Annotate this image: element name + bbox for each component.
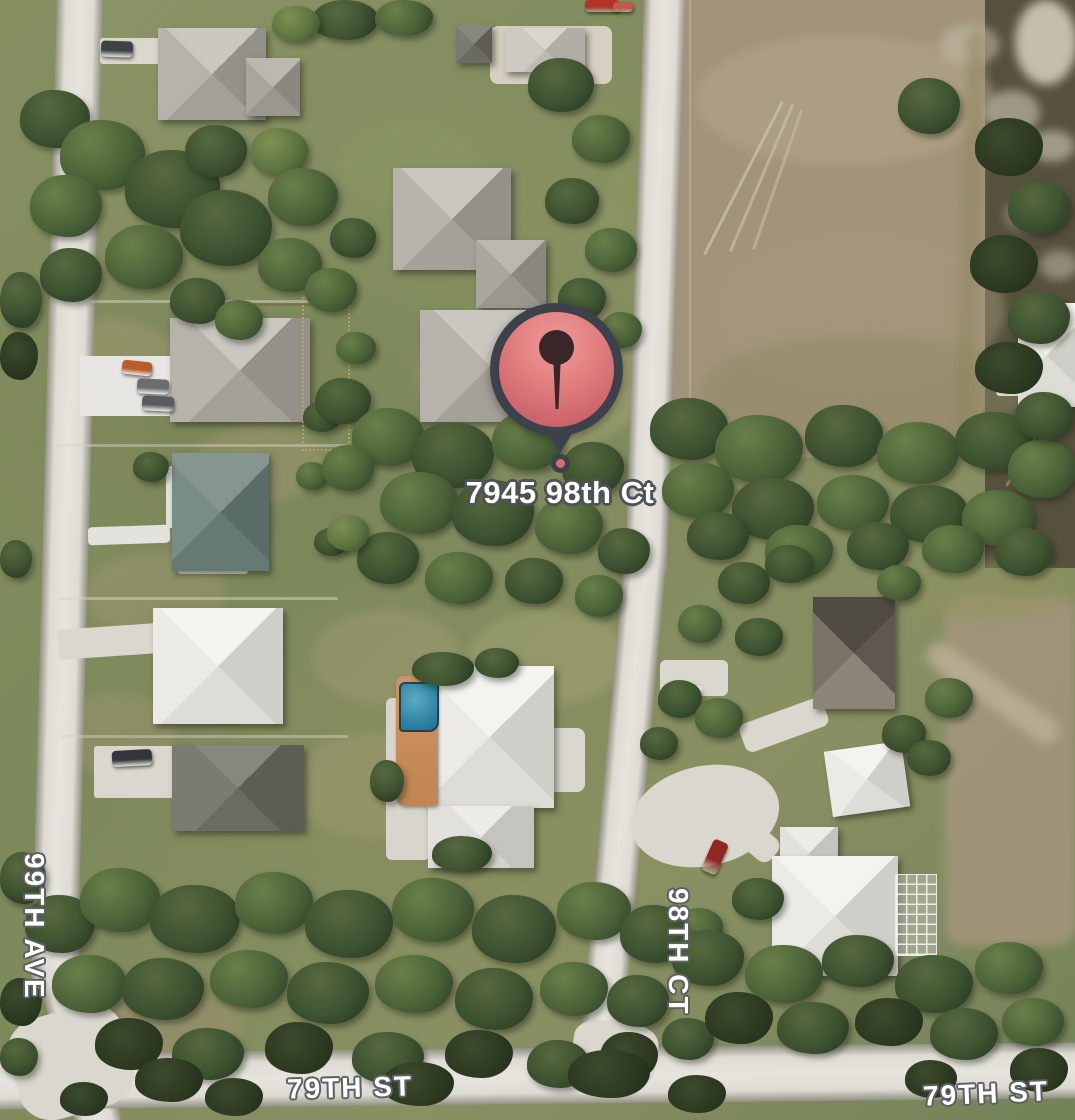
tree-canopy	[898, 78, 960, 134]
tree-canopy	[432, 836, 492, 872]
tree-canopy	[925, 678, 973, 718]
tree-canopy	[970, 235, 1038, 293]
pin-circle-icon	[490, 303, 623, 436]
tree-canopy	[975, 942, 1043, 994]
tree-canopy	[322, 445, 374, 491]
pin-glyph-stem	[551, 362, 563, 409]
tree-canopy	[735, 618, 783, 656]
tree-canopy	[995, 528, 1053, 576]
tree-canopy	[455, 968, 533, 1030]
tree-canopy	[52, 955, 126, 1013]
tree-canopy	[540, 962, 608, 1016]
tree-canopy	[180, 190, 272, 266]
street-label-99th-ave: 99TH AVE	[20, 853, 48, 1000]
tree-canopy	[475, 648, 519, 678]
tree-canopy	[765, 545, 813, 583]
tree-canopy	[715, 415, 803, 483]
tree-canopy	[575, 575, 623, 617]
tree-canopy	[272, 6, 320, 42]
tree-canopy	[215, 300, 263, 340]
tree-canopy	[907, 740, 951, 776]
tree-canopy	[327, 515, 369, 551]
tree-canopy	[336, 332, 376, 364]
tree-canopy	[975, 342, 1043, 394]
pin-tail	[547, 432, 573, 453]
tree-canopy	[930, 1008, 998, 1060]
tree-canopy	[732, 878, 784, 920]
tree-canopy	[30, 175, 102, 237]
tree-canopy	[668, 1075, 726, 1113]
tree-canopy	[585, 228, 637, 272]
tree-canopy	[877, 422, 959, 484]
location-pin[interactable]	[490, 303, 630, 478]
tree-canopy	[412, 652, 474, 686]
tree-canopy	[105, 225, 183, 289]
tree-canopy	[777, 1002, 849, 1054]
tree-canopy	[695, 698, 743, 738]
tree-canopy	[375, 0, 433, 36]
tree-canopy	[60, 1082, 108, 1116]
tree-canopy	[640, 727, 678, 760]
tree-canopy	[445, 1030, 513, 1078]
tree-canopy	[572, 115, 630, 163]
tree-canopy	[150, 885, 240, 953]
tree-canopy	[678, 605, 722, 643]
tree-canopy	[133, 452, 169, 482]
tree-canopy	[287, 962, 369, 1024]
pin-anchor-dot	[551, 454, 570, 473]
tree-canopy	[305, 890, 393, 958]
tree-canopy	[1008, 440, 1075, 498]
street-label-79th-st-right: 79TH ST	[922, 1077, 1049, 1110]
tree-canopy	[0, 540, 32, 578]
tree-canopy	[0, 332, 38, 380]
tree-canopy	[718, 562, 770, 604]
tree-canopy	[122, 958, 204, 1020]
street-label-98th-ct: 98TH CT	[664, 888, 692, 1016]
tree-canopy	[235, 872, 313, 934]
tree-canopy	[598, 528, 650, 574]
tree-canopy	[135, 1058, 203, 1102]
tree-canopy	[0, 1038, 38, 1076]
satellite-map[interactable]: 99TH AVE 98TH CT 79TH ST 79TH ST 7945 98…	[0, 0, 1075, 1120]
tree-canopy	[265, 1022, 333, 1074]
tree-canopy	[425, 552, 493, 604]
tree-canopy	[312, 0, 378, 40]
tree-canopy	[505, 558, 563, 604]
tree-canopy	[210, 950, 288, 1008]
tree-canopy	[545, 178, 599, 224]
tree-canopy	[392, 878, 474, 942]
tree-canopy	[268, 168, 338, 226]
tree-canopy	[855, 998, 923, 1046]
tree-canopy	[805, 405, 883, 467]
tree-canopy	[687, 512, 749, 560]
street-label-79th-st-left: 79TH ST	[287, 1072, 414, 1103]
tree-canopy	[877, 565, 921, 601]
tree-layer	[0, 0, 1075, 1120]
tree-canopy	[330, 218, 376, 258]
tree-canopy	[1008, 292, 1070, 344]
pin-anchor-dot-inner	[556, 459, 565, 468]
tree-canopy	[1015, 392, 1073, 440]
tree-canopy	[472, 895, 556, 963]
tree-canopy	[375, 955, 453, 1013]
tree-canopy	[185, 125, 247, 177]
tree-canopy	[370, 760, 404, 802]
tree-canopy	[607, 975, 669, 1027]
tree-canopy	[847, 522, 909, 570]
tree-canopy	[922, 525, 984, 573]
tree-canopy	[205, 1078, 263, 1116]
tree-canopy	[305, 268, 357, 312]
tree-canopy	[1008, 182, 1070, 234]
pin-glyph-head	[539, 330, 574, 365]
tree-canopy	[568, 1050, 650, 1098]
tree-canopy	[822, 935, 894, 987]
tree-canopy	[80, 868, 160, 932]
tree-canopy	[975, 118, 1043, 176]
tree-canopy	[528, 58, 594, 112]
tree-canopy	[0, 272, 42, 328]
tree-canopy	[40, 248, 102, 302]
tree-canopy	[1002, 998, 1064, 1046]
tree-canopy	[705, 992, 773, 1044]
pin-address-label: 7945 98th Ct	[410, 475, 710, 511]
tree-canopy	[745, 945, 823, 1003]
